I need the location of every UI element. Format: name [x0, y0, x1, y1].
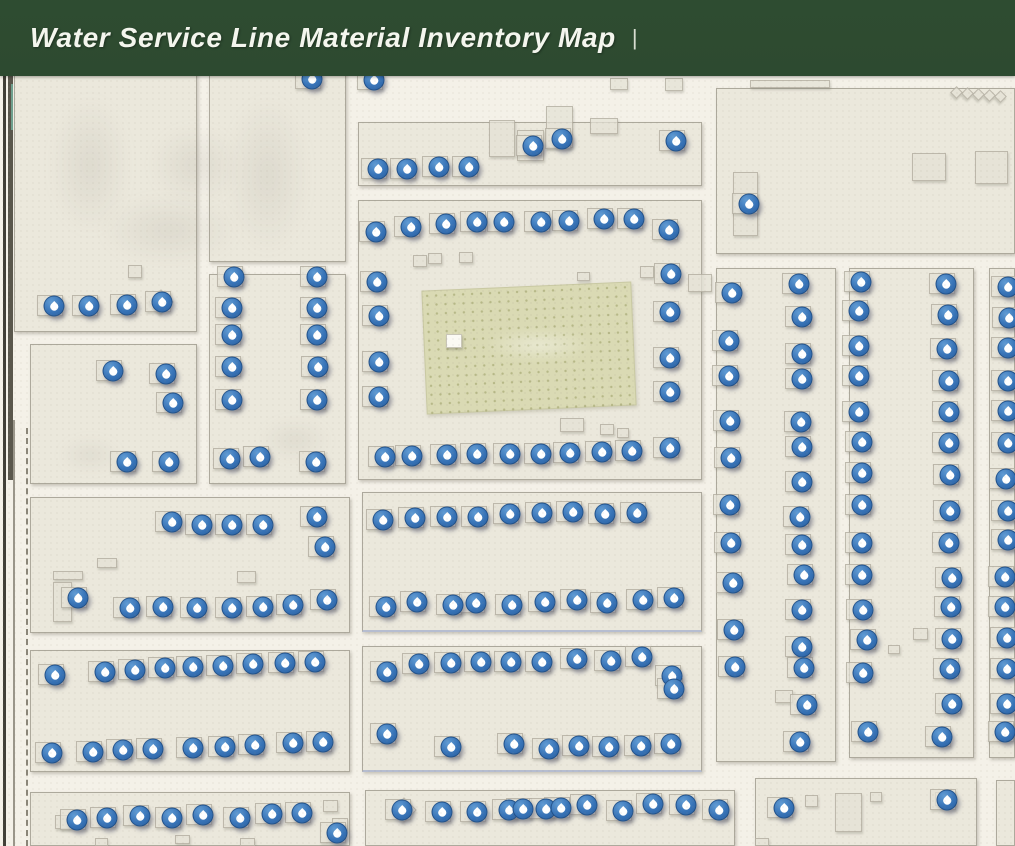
water-service-marker[interactable] — [317, 590, 338, 611]
water-service-marker[interactable] — [723, 573, 744, 594]
water-service-marker[interactable] — [504, 734, 525, 755]
water-service-marker[interactable] — [661, 734, 682, 755]
building-footprint — [610, 78, 628, 90]
building-footprint — [750, 80, 830, 88]
water-service-marker[interactable] — [849, 366, 870, 387]
water-service-marker[interactable] — [660, 438, 681, 459]
water-service-marker[interactable] — [849, 402, 870, 423]
water-service-marker[interactable] — [283, 595, 304, 616]
building-footprint — [975, 151, 1008, 184]
water-service-marker[interactable] — [939, 433, 960, 454]
water-service-marker[interactable] — [243, 654, 264, 675]
water-service-marker[interactable] — [552, 129, 573, 150]
water-service-marker[interactable] — [307, 267, 328, 288]
water-service-marker[interactable] — [42, 743, 63, 764]
water-service-marker[interactable] — [409, 654, 430, 675]
water-service-marker[interactable] — [613, 801, 634, 822]
water-service-marker[interactable] — [83, 742, 104, 763]
water-service-marker[interactable] — [245, 735, 266, 756]
water-service-marker[interactable] — [117, 295, 138, 316]
water-service-marker[interactable] — [501, 652, 522, 673]
building-footprint — [640, 266, 654, 278]
water-service-marker[interactable] — [377, 662, 398, 683]
water-service-marker[interactable] — [932, 727, 953, 748]
water-service-marker[interactable] — [996, 469, 1015, 490]
building-footprint — [755, 838, 769, 846]
water-service-marker[interactable] — [995, 597, 1015, 618]
park-building — [446, 334, 462, 348]
water-service-marker[interactable] — [789, 274, 810, 295]
water-service-marker[interactable] — [852, 565, 873, 586]
water-service-marker[interactable] — [315, 537, 336, 558]
city-block — [716, 88, 1015, 254]
building-footprint — [323, 800, 338, 812]
building-footprint — [175, 835, 190, 844]
building-footprint — [95, 838, 108, 846]
water-service-marker[interactable] — [222, 357, 243, 378]
building-footprint — [617, 428, 629, 438]
water-service-marker[interactable] — [938, 305, 959, 326]
water-service-marker[interactable] — [852, 495, 873, 516]
water-service-marker[interactable] — [599, 737, 620, 758]
water-service-marker[interactable] — [532, 652, 553, 673]
water-service-marker[interactable] — [155, 658, 176, 679]
water-service-marker[interactable] — [569, 736, 590, 757]
water-service-marker[interactable] — [720, 495, 741, 516]
water-service-marker[interactable] — [307, 390, 328, 411]
city-block — [996, 780, 1015, 846]
water-service-marker[interactable] — [722, 283, 743, 304]
building-footprint — [459, 252, 473, 263]
water-service-marker[interactable] — [995, 722, 1015, 743]
water-service-marker[interactable] — [159, 452, 180, 473]
water-service-marker[interactable] — [523, 136, 544, 157]
water-service-marker[interactable] — [369, 306, 390, 327]
map-canvas[interactable] — [0, 0, 1015, 846]
water-service-marker[interactable] — [532, 503, 553, 524]
water-service-marker[interactable] — [467, 212, 488, 233]
water-service-marker[interactable] — [367, 272, 388, 293]
water-service-marker[interactable] — [631, 736, 652, 757]
water-service-marker[interactable] — [429, 157, 450, 178]
boundary-line — [3, 60, 6, 846]
boundary-line — [11, 84, 13, 130]
water-service-marker[interactable] — [661, 264, 682, 285]
water-service-marker[interactable] — [719, 331, 740, 352]
water-service-marker[interactable] — [999, 308, 1015, 329]
water-service-marker[interactable] — [940, 465, 961, 486]
water-service-marker[interactable] — [941, 597, 962, 618]
water-service-marker[interactable] — [940, 659, 961, 680]
water-service-marker[interactable] — [939, 402, 960, 423]
water-service-marker[interactable] — [595, 504, 616, 525]
water-service-marker[interactable] — [156, 364, 177, 385]
title-separator: | — [632, 25, 638, 51]
water-service-marker[interactable] — [624, 209, 645, 230]
water-service-marker[interactable] — [373, 510, 394, 531]
water-service-marker[interactable] — [307, 507, 328, 528]
water-service-marker[interactable] — [560, 443, 581, 464]
water-service-marker[interactable] — [500, 444, 521, 465]
water-service-marker[interactable] — [467, 444, 488, 465]
building-footprint — [97, 558, 117, 568]
water-service-marker[interactable] — [592, 442, 613, 463]
park-label-smudge — [484, 328, 594, 362]
building-footprint — [888, 645, 900, 654]
water-service-marker[interactable] — [162, 808, 183, 829]
water-service-marker[interactable] — [632, 647, 653, 668]
water-service-marker[interactable] — [937, 790, 958, 811]
water-service-marker[interactable] — [468, 507, 489, 528]
water-service-marker[interactable] — [44, 296, 65, 317]
water-service-marker[interactable] — [45, 665, 66, 686]
water-service-marker[interactable] — [502, 595, 523, 616]
water-service-marker[interactable] — [103, 361, 124, 382]
water-service-marker[interactable] — [664, 679, 685, 700]
water-service-marker[interactable] — [437, 507, 458, 528]
water-service-marker[interactable] — [997, 628, 1015, 649]
water-service-marker[interactable] — [215, 737, 236, 758]
water-service-marker[interactable] — [792, 307, 813, 328]
water-service-marker[interactable] — [942, 629, 963, 650]
water-service-marker[interactable] — [222, 325, 243, 346]
water-service-marker[interactable] — [790, 507, 811, 528]
water-service-marker[interactable] — [659, 220, 680, 241]
water-service-marker[interactable] — [633, 590, 654, 611]
building-footprint — [577, 272, 590, 281]
water-service-marker[interactable] — [939, 371, 960, 392]
water-service-marker[interactable] — [797, 695, 818, 716]
water-service-marker[interactable] — [187, 598, 208, 619]
water-service-marker[interactable] — [466, 593, 487, 614]
water-service-marker[interactable] — [720, 411, 741, 432]
water-service-marker[interactable] — [120, 598, 141, 619]
water-service-marker[interactable] — [997, 659, 1015, 680]
water-service-marker[interactable] — [721, 533, 742, 554]
water-service-marker[interactable] — [308, 357, 329, 378]
water-service-marker[interactable] — [563, 502, 584, 523]
water-service-marker[interactable] — [942, 694, 963, 715]
water-service-marker[interactable] — [597, 593, 618, 614]
water-service-marker[interactable] — [230, 808, 251, 829]
water-service-marker[interactable] — [567, 590, 588, 611]
water-service-marker[interactable] — [794, 658, 815, 679]
water-service-marker[interactable] — [997, 694, 1015, 715]
building-footprint — [489, 120, 515, 157]
water-service-marker[interactable] — [721, 448, 742, 469]
water-service-marker[interactable] — [163, 393, 184, 414]
water-service-marker[interactable] — [262, 804, 283, 825]
water-service-marker[interactable] — [998, 371, 1015, 392]
water-service-marker[interactable] — [369, 352, 390, 373]
water-service-marker[interactable] — [719, 366, 740, 387]
water-service-marker[interactable] — [942, 568, 963, 589]
water-service-marker[interactable] — [666, 131, 687, 152]
water-service-marker[interactable] — [627, 503, 648, 524]
water-service-marker[interactable] — [995, 567, 1015, 588]
water-service-marker[interactable] — [437, 445, 458, 466]
water-service-marker[interactable] — [594, 209, 615, 230]
water-service-marker[interactable] — [375, 447, 396, 468]
water-service-marker[interactable] — [377, 724, 398, 745]
water-service-marker[interactable] — [725, 657, 746, 678]
water-service-marker[interactable] — [292, 803, 313, 824]
water-service-marker[interactable] — [307, 298, 328, 319]
water-service-marker[interactable] — [559, 211, 580, 232]
water-service-marker[interactable] — [253, 597, 274, 618]
water-service-marker[interactable] — [535, 592, 556, 613]
building-footprint — [240, 838, 255, 846]
water-service-marker[interactable] — [152, 292, 173, 313]
water-service-marker[interactable] — [849, 336, 870, 357]
map-watermark-smudge — [100, 195, 240, 265]
water-service-marker[interactable] — [724, 620, 745, 641]
water-service-marker[interactable] — [250, 447, 271, 468]
water-service-marker[interactable] — [162, 512, 183, 533]
water-service-marker[interactable] — [936, 274, 957, 295]
water-service-marker[interactable] — [283, 733, 304, 754]
water-service-marker[interactable] — [213, 656, 234, 677]
water-service-marker[interactable] — [851, 272, 872, 293]
building-footprint — [413, 255, 427, 267]
water-service-marker[interactable] — [791, 412, 812, 433]
water-service-marker[interactable] — [852, 463, 873, 484]
water-service-marker[interactable] — [436, 214, 457, 235]
water-service-marker[interactable] — [858, 722, 879, 743]
water-service-marker[interactable] — [853, 600, 874, 621]
water-service-marker[interactable] — [739, 194, 760, 215]
boundary-line — [13, 420, 15, 846]
water-service-marker[interactable] — [792, 600, 813, 621]
water-service-marker[interactable] — [305, 652, 326, 673]
building-footprint — [560, 418, 584, 432]
water-service-marker[interactable] — [113, 740, 134, 761]
water-service-marker[interactable] — [397, 159, 418, 180]
water-service-marker[interactable] — [660, 302, 681, 323]
water-service-marker[interactable] — [97, 808, 118, 829]
water-service-marker[interactable] — [366, 222, 387, 243]
water-service-marker[interactable] — [125, 660, 146, 681]
water-service-marker[interactable] — [792, 344, 813, 365]
water-service-marker[interactable] — [79, 296, 100, 317]
water-service-marker[interactable] — [998, 401, 1015, 422]
water-service-marker[interactable] — [660, 382, 681, 403]
water-service-marker[interactable] — [852, 432, 873, 453]
water-service-marker[interactable] — [664, 588, 685, 609]
water-service-marker[interactable] — [792, 472, 813, 493]
water-service-marker[interactable] — [601, 651, 622, 672]
boundary-line — [26, 428, 28, 846]
water-service-marker[interactable] — [441, 737, 462, 758]
water-service-marker[interactable] — [467, 802, 488, 823]
water-service-marker[interactable] — [222, 298, 243, 319]
water-service-marker[interactable] — [494, 212, 515, 233]
water-service-marker[interactable] — [937, 339, 958, 360]
water-service-marker[interactable] — [368, 159, 389, 180]
water-service-marker[interactable] — [643, 794, 664, 815]
water-service-marker[interactable] — [275, 653, 296, 674]
water-service-marker[interactable] — [183, 738, 204, 759]
water-service-marker[interactable] — [792, 535, 813, 556]
water-service-marker[interactable] — [67, 810, 88, 831]
building-footprint — [600, 424, 614, 435]
water-service-marker[interactable] — [471, 652, 492, 673]
water-service-marker[interactable] — [306, 452, 327, 473]
water-service-marker[interactable] — [676, 795, 697, 816]
water-service-marker[interactable] — [220, 449, 241, 470]
building-footprint — [835, 793, 862, 832]
water-service-marker[interactable] — [143, 739, 164, 760]
water-service-marker[interactable] — [794, 565, 815, 586]
app-window: Water Service Line Material Inventory Ma… — [0, 0, 1015, 846]
water-service-marker[interactable] — [940, 501, 961, 522]
building-footprint — [237, 571, 256, 583]
water-service-marker[interactable] — [998, 530, 1015, 551]
water-service-marker[interactable] — [432, 802, 453, 823]
building-footprint — [870, 792, 882, 802]
water-service-marker[interactable] — [392, 800, 413, 821]
water-service-marker[interactable] — [849, 301, 870, 322]
water-service-marker[interactable] — [443, 595, 464, 616]
water-service-marker[interactable] — [222, 598, 243, 619]
water-service-marker[interactable] — [459, 157, 480, 178]
water-service-marker[interactable] — [224, 267, 245, 288]
water-service-marker[interactable] — [95, 662, 116, 683]
water-service-marker[interactable] — [774, 798, 795, 819]
water-service-marker[interactable] — [253, 515, 274, 536]
water-service-marker[interactable] — [441, 653, 462, 674]
water-service-marker[interactable] — [531, 212, 552, 233]
water-service-marker[interactable] — [68, 588, 89, 609]
water-service-marker[interactable] — [369, 387, 390, 408]
water-service-marker[interactable] — [222, 515, 243, 536]
water-service-marker[interactable] — [852, 533, 873, 554]
building-footprint — [428, 253, 442, 264]
water-service-marker[interactable] — [401, 217, 422, 238]
water-service-marker[interactable] — [551, 798, 572, 819]
app-title: Water Service Line Material Inventory Ma… — [30, 22, 616, 54]
water-service-marker[interactable] — [998, 433, 1015, 454]
building-footprint — [688, 274, 712, 292]
water-service-marker[interactable] — [567, 649, 588, 670]
water-service-marker[interactable] — [402, 446, 423, 467]
water-service-marker[interactable] — [407, 592, 428, 613]
water-service-marker[interactable] — [939, 533, 960, 554]
water-service-marker[interactable] — [153, 597, 174, 618]
water-service-marker[interactable] — [327, 823, 348, 844]
water-service-marker[interactable] — [500, 504, 521, 525]
water-service-marker[interactable] — [857, 630, 878, 651]
water-service-marker[interactable] — [622, 441, 643, 462]
building-footprint — [805, 795, 818, 807]
water-service-marker[interactable] — [792, 369, 813, 390]
building-footprint — [128, 265, 142, 278]
water-service-marker[interactable] — [577, 795, 598, 816]
water-service-marker[interactable] — [183, 657, 204, 678]
water-service-marker[interactable] — [130, 806, 151, 827]
app-header: Water Service Line Material Inventory Ma… — [0, 0, 1015, 76]
water-service-marker[interactable] — [376, 597, 397, 618]
water-service-marker[interactable] — [405, 508, 426, 529]
building-footprint — [913, 628, 928, 640]
building-footprint — [53, 571, 83, 580]
water-service-marker[interactable] — [222, 390, 243, 411]
building-footprint — [912, 153, 946, 181]
water-service-marker[interactable] — [117, 452, 138, 473]
building-footprint — [665, 78, 683, 91]
water-service-marker[interactable] — [790, 732, 811, 753]
water-service-marker[interactable] — [792, 637, 813, 658]
water-service-marker[interactable] — [513, 799, 534, 820]
water-service-marker[interactable] — [539, 739, 560, 760]
water-service-marker[interactable] — [193, 805, 214, 826]
water-service-marker[interactable] — [998, 277, 1015, 298]
water-service-marker[interactable] — [998, 338, 1015, 359]
water-service-marker[interactable] — [792, 437, 813, 458]
water-service-marker[interactable] — [853, 663, 874, 684]
building-footprint — [590, 118, 618, 134]
water-service-marker[interactable] — [709, 800, 730, 821]
water-service-marker[interactable] — [531, 444, 552, 465]
water-service-marker[interactable] — [192, 515, 213, 536]
water-service-marker[interactable] — [660, 348, 681, 369]
water-service-marker[interactable] — [998, 501, 1015, 522]
water-service-marker[interactable] — [313, 732, 334, 753]
water-service-marker[interactable] — [307, 325, 328, 346]
